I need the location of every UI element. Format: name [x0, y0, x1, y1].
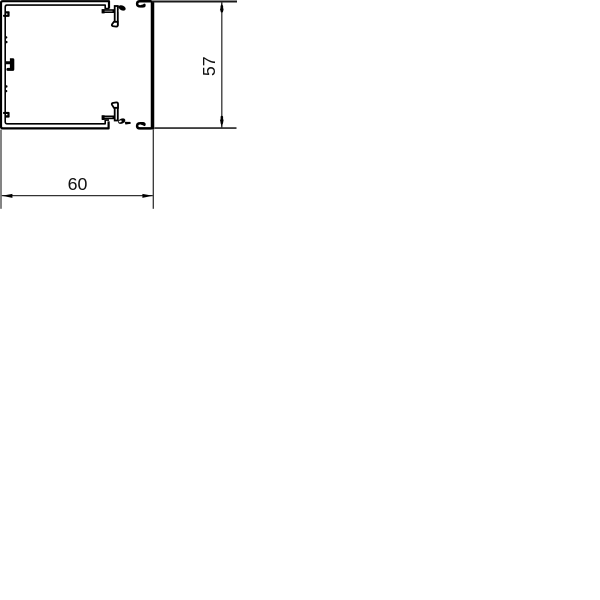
svg-text:57: 57 — [199, 56, 219, 76]
svg-text:60: 60 — [68, 174, 88, 194]
